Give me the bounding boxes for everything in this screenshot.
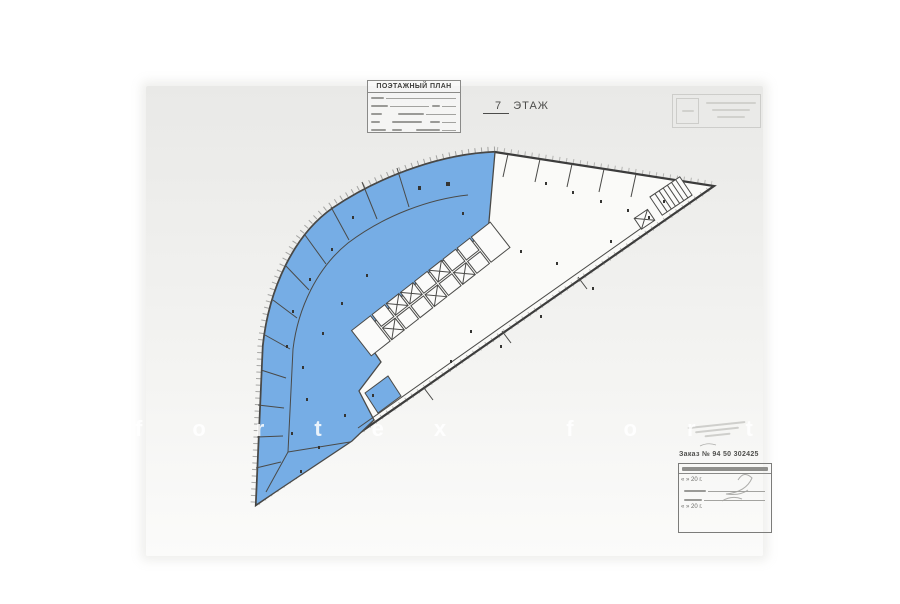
field-line <box>442 122 456 123</box>
field-label-mark <box>371 121 380 123</box>
surveyor-field <box>681 494 769 503</box>
field-label-mark <box>392 129 402 131</box>
divider <box>679 473 771 474</box>
field-label-mark <box>430 121 440 123</box>
field-line <box>708 491 765 492</box>
field-label-mark <box>432 105 440 107</box>
field-label-mark <box>371 97 384 99</box>
stamp-mark <box>682 110 694 112</box>
stamp-line <box>706 102 756 104</box>
field-label-mark <box>684 499 702 501</box>
date-row: « » 20 г. <box>681 476 769 485</box>
field-label-mark <box>398 113 424 115</box>
field-line <box>442 130 456 131</box>
date-row: « » 20 г. <box>681 503 769 512</box>
field-label-mark <box>684 490 706 492</box>
field-label-mark <box>371 113 382 115</box>
floor-number: 7 <box>483 100 509 114</box>
surveyor-box-header-text <box>682 467 768 471</box>
title-block-field <box>368 117 460 125</box>
title-block-field <box>368 93 460 101</box>
field-label-mark <box>392 121 422 123</box>
surveyor-box: « » 20 г. « » 20 г. <box>678 463 772 533</box>
stamp-text-lines <box>702 95 760 127</box>
stamp-logo-box <box>676 98 699 124</box>
surveyor-field <box>681 485 769 494</box>
watermark-text: fortex fortex <box>135 416 900 442</box>
field-line <box>442 106 456 107</box>
floor-label: 7 ЭТАЖ <box>483 100 549 112</box>
scan-content: ПОЭТАЖНЫЙ ПЛАН <box>0 0 900 604</box>
field-label-mark <box>371 105 388 107</box>
title-block-field <box>368 125 460 133</box>
registration-stamp <box>672 94 761 128</box>
title-block-field <box>368 101 460 109</box>
floor-word: ЭТАЖ <box>513 100 549 112</box>
stamp-line <box>717 116 745 118</box>
field-label-mark <box>371 129 386 131</box>
title-block-heading: ПОЭТАЖНЫЙ ПЛАН <box>368 81 460 93</box>
stamp-line <box>712 109 750 111</box>
field-line <box>390 106 429 107</box>
field-line <box>386 98 456 99</box>
field-line <box>704 500 765 501</box>
scanned-floor-plan-page: ПОЭТАЖНЫЙ ПЛАН <box>0 0 900 604</box>
title-block: ПОЭТАЖНЫЙ ПЛАН <box>367 80 461 133</box>
field-line <box>426 114 456 115</box>
order-number: Заказ № 94 50 302425 <box>679 451 759 458</box>
title-block-field <box>368 109 460 117</box>
field-label-mark <box>416 129 440 131</box>
